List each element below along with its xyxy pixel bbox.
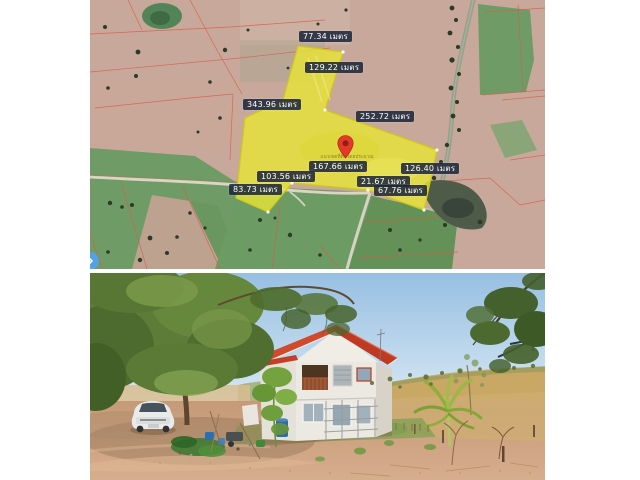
measurement-label-left: 343.96 เมตร <box>243 99 301 110</box>
measurement-label-bottom-left: 83.73 เมตร <box>229 184 282 195</box>
house-photo[interactable] <box>90 273 545 480</box>
map-control-icon[interactable] <box>90 251 100 269</box>
red-frame-window <box>357 368 371 381</box>
location-pin-icon <box>337 135 354 159</box>
measurement-label-strip-right: 129.22 เมตร <box>305 62 363 73</box>
house-photo-art <box>90 273 545 480</box>
measurement-label-top: 77.34 เมตร <box>299 31 352 42</box>
louver-window <box>333 365 352 386</box>
measurement-label-lower-left: 103.56 เมตร <box>257 171 315 182</box>
satellite-map-photo[interactable]: 77.34 เมตร 129.22 เมตร 343.96 เมตร 252.7… <box>90 0 545 269</box>
measurement-label-center: 167.66 เมตร <box>309 161 367 172</box>
measurement-label-bottom-right: 67.76 เมตร <box>374 185 427 196</box>
measurement-label-upper-right: 252.72 เมตร <box>356 111 414 122</box>
measurement-label-right: 126.40 เมตร <box>401 163 459 174</box>
listing-collage: 77.34 เมตร 129.22 เมตร 343.96 เมตร 252.7… <box>0 0 640 480</box>
